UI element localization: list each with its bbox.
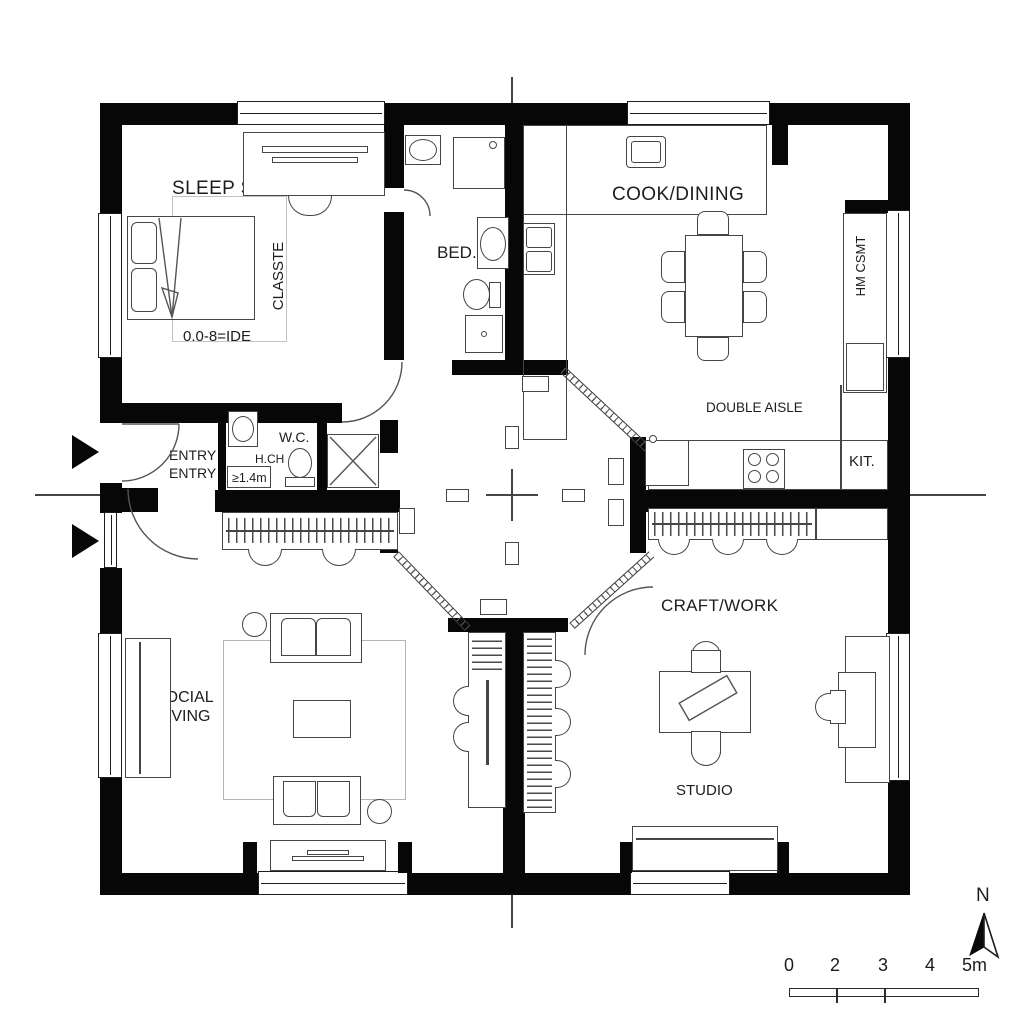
kit-label: KIT. — [849, 454, 875, 469]
double-sink-basin-1 — [526, 227, 552, 248]
double-sink-basin-2 — [526, 251, 552, 272]
pier-top-right — [772, 125, 788, 165]
wall-left-5 — [100, 778, 122, 895]
wall-left-1 — [100, 103, 122, 213]
side-table-1 — [242, 612, 267, 637]
wall-left-2 — [100, 358, 122, 423]
studio-chair-seat — [830, 690, 846, 724]
floor-plan: SLEEP SUITE CLASSTE 0.0-8=IDE BED. COOK/… — [0, 0, 1024, 1024]
window-left-lower — [98, 633, 122, 778]
hall-switch-e2 — [608, 499, 624, 526]
window-right-upper — [886, 210, 910, 358]
studio-cabinet — [632, 826, 778, 871]
dining-chair-n — [697, 211, 729, 235]
dining-chair-w1 — [661, 251, 685, 283]
hall-cross-v — [511, 469, 513, 521]
dining-chair-w2 — [661, 291, 685, 323]
hall-switch-top — [522, 376, 549, 392]
fridge — [645, 440, 689, 486]
wc-sink-bowl — [232, 416, 254, 442]
entry-label-2: ENTRY — [169, 466, 216, 480]
scale-label-3: 3 — [878, 956, 888, 974]
wardrobe-left-arc-2 — [322, 549, 356, 566]
scale-label-2: 2 — [830, 956, 840, 974]
burner-2 — [766, 453, 779, 466]
wardrobe-right-arc-3 — [766, 539, 798, 555]
dining-table — [685, 235, 743, 337]
wc-toilet-bowl — [288, 448, 312, 478]
window-top-right — [627, 101, 770, 125]
side-table-2 — [367, 799, 392, 824]
door-arc-bedroom — [342, 362, 402, 422]
bed-pillow-1 — [131, 222, 157, 264]
hall-marker-n — [505, 426, 519, 449]
toilet-bowl-bath — [463, 279, 490, 310]
hch-label: H.CH — [255, 453, 284, 465]
pier-studio-left — [620, 842, 632, 873]
living-cabinet — [125, 638, 171, 778]
scale-tick-2 — [884, 988, 886, 1003]
wardrobe-right-arc-2 — [712, 539, 744, 555]
dining-chair-e1 — [743, 251, 767, 283]
north-arrow-filled — [970, 913, 984, 955]
wall-right-1 — [888, 103, 910, 210]
wall-left-4 — [100, 568, 122, 633]
bed-pillow-2 — [131, 268, 157, 312]
scale-tick-1 — [836, 988, 838, 1003]
hall-switch-w — [399, 508, 415, 534]
hall-switch-e1 — [608, 458, 624, 485]
wc-toilet-tank — [285, 477, 315, 487]
closet-right-arc-2 — [555, 708, 571, 736]
closet-right-arc-3 — [555, 760, 571, 788]
living-cabinet-divider — [139, 642, 141, 774]
kit-section-line — [840, 385, 842, 490]
wall-entry-south-b — [215, 490, 400, 512]
pier-kit-top — [845, 200, 888, 213]
burner-3 — [748, 470, 761, 483]
wall-right-3 — [888, 781, 910, 895]
entry-arrow-lower — [72, 524, 99, 558]
north-arrow-outline — [984, 913, 998, 957]
entry-door-closed — [104, 512, 117, 568]
wardrobe-left-arc-1 — [248, 549, 282, 566]
ref-line-top — [511, 77, 513, 103]
entry-arrow-upper — [72, 435, 99, 469]
vanity-bowl — [480, 227, 506, 261]
wall-left-3 — [100, 483, 122, 513]
burner-1 — [748, 453, 761, 466]
window-bottom-right — [630, 871, 730, 895]
bath-sink-low-drain — [481, 331, 487, 337]
scale-label-0: 0 — [784, 956, 794, 974]
wall-bottom-1 — [100, 873, 258, 895]
studio-label: STUDIO — [676, 783, 733, 798]
dining-chair-s — [697, 337, 729, 361]
studio-cabinet-line — [636, 838, 774, 840]
door-arc-closet — [404, 190, 430, 216]
sofa-top-cushion-1 — [281, 618, 316, 656]
pier-studio-right — [777, 842, 789, 873]
sofa-top-cushion-2 — [316, 618, 351, 656]
door-arc-studio — [585, 587, 653, 655]
glazing-ne — [560, 367, 652, 453]
wall-top-2 — [385, 103, 627, 125]
coffee-table — [293, 700, 351, 738]
dining-chair-e2 — [743, 291, 767, 323]
pier-hall-nw — [380, 420, 398, 453]
pier-tv-right — [398, 842, 412, 873]
dresser-top — [243, 132, 385, 196]
dresser-top-detail-2 — [272, 157, 358, 163]
wc-shower — [327, 434, 379, 488]
wall-bottom-3 — [730, 873, 910, 895]
kitchen-sink-top-basin — [631, 141, 661, 163]
window-top-left — [237, 101, 385, 125]
wardrobe-right-rail — [652, 523, 812, 525]
closet-strip-left-door — [486, 680, 489, 765]
ref-line-left — [35, 494, 100, 496]
hall-marker-w — [446, 489, 469, 502]
ref-line-bottom — [511, 895, 513, 928]
bath-sink-top-bowl — [409, 139, 437, 161]
entry-label-1: ENTRY — [169, 448, 216, 462]
toilet-tank-bath — [489, 282, 501, 308]
hall-switch-bottom — [480, 599, 507, 615]
north-label: N — [976, 886, 990, 905]
closet-left-arc-2 — [453, 722, 469, 752]
min-clearance-label: ≥1.4m — [232, 472, 267, 485]
stool-top-seat — [691, 650, 721, 673]
shower-top — [453, 137, 505, 189]
wardrobe-left-rail — [226, 530, 394, 532]
tv-bar-1 — [292, 856, 364, 861]
bed-room-label: BED. — [437, 244, 477, 261]
pier-tv-left — [243, 842, 257, 873]
wall-wc-divider — [317, 410, 327, 490]
fridge-handle — [649, 435, 657, 443]
scale-label-5m: 5m — [962, 956, 987, 974]
closet-strip-left-shelves — [472, 636, 502, 670]
wardrobe-right-arc-1 — [658, 539, 690, 555]
hall-marker-s — [505, 542, 519, 565]
cabinet-label-text: HM CSMT — [854, 236, 867, 297]
burner-4 — [766, 470, 779, 483]
wall-bottom-2 — [408, 873, 630, 895]
sofa-bottom-cushion-2 — [317, 781, 350, 817]
dresser-top-detail-1 — [262, 146, 368, 153]
glazing-sw — [393, 551, 470, 631]
cabinet-label: HM CSMT — [852, 223, 868, 309]
closet-label: CLASSTE — [268, 231, 288, 321]
counter-left-run — [523, 125, 567, 440]
cook-dining-label: COOK/DINING — [612, 185, 744, 204]
wall-sleep-bed-upper — [384, 125, 404, 188]
work-table — [659, 671, 751, 733]
window-bottom-left — [258, 871, 408, 895]
closet-left-arc-1 — [453, 686, 469, 716]
closet-strip-right-hangers — [527, 636, 552, 808]
wall-sleep-bed-lower — [384, 212, 404, 360]
closet-right-arc-1 — [555, 660, 571, 688]
closet-label-text: CLASSTE — [271, 242, 286, 310]
sofa-bottom-cushion-1 — [283, 781, 316, 817]
dresser-chair — [288, 196, 332, 216]
glazing-se — [569, 551, 654, 629]
window-left-upper — [98, 213, 122, 358]
hall-marker-e — [562, 489, 585, 502]
studio-chair-back — [815, 693, 831, 721]
tv-bar-2 — [307, 850, 349, 855]
wall-entry-divider — [218, 423, 226, 490]
tall-cabinet-appliance — [846, 343, 884, 391]
stool-bottom-back — [691, 751, 721, 766]
wall-entry-south-a — [122, 488, 158, 512]
north-arrow — [970, 913, 998, 957]
double-aisle-label: DOUBLE AISLE — [706, 401, 803, 415]
wc-label: W.C. — [279, 430, 309, 444]
shower-top-drain — [489, 141, 497, 149]
craft-work-label: CRAFT/WORK — [661, 597, 778, 614]
wall-living-studio — [503, 632, 525, 873]
ref-line-right — [910, 494, 986, 496]
min-clearance-box: ≥1.4m — [227, 466, 271, 488]
scale-label-4: 4 — [925, 956, 935, 974]
wardrobe-right-plain — [816, 508, 888, 540]
bed-dimension-label: 0.0-8=IDE — [183, 329, 251, 344]
